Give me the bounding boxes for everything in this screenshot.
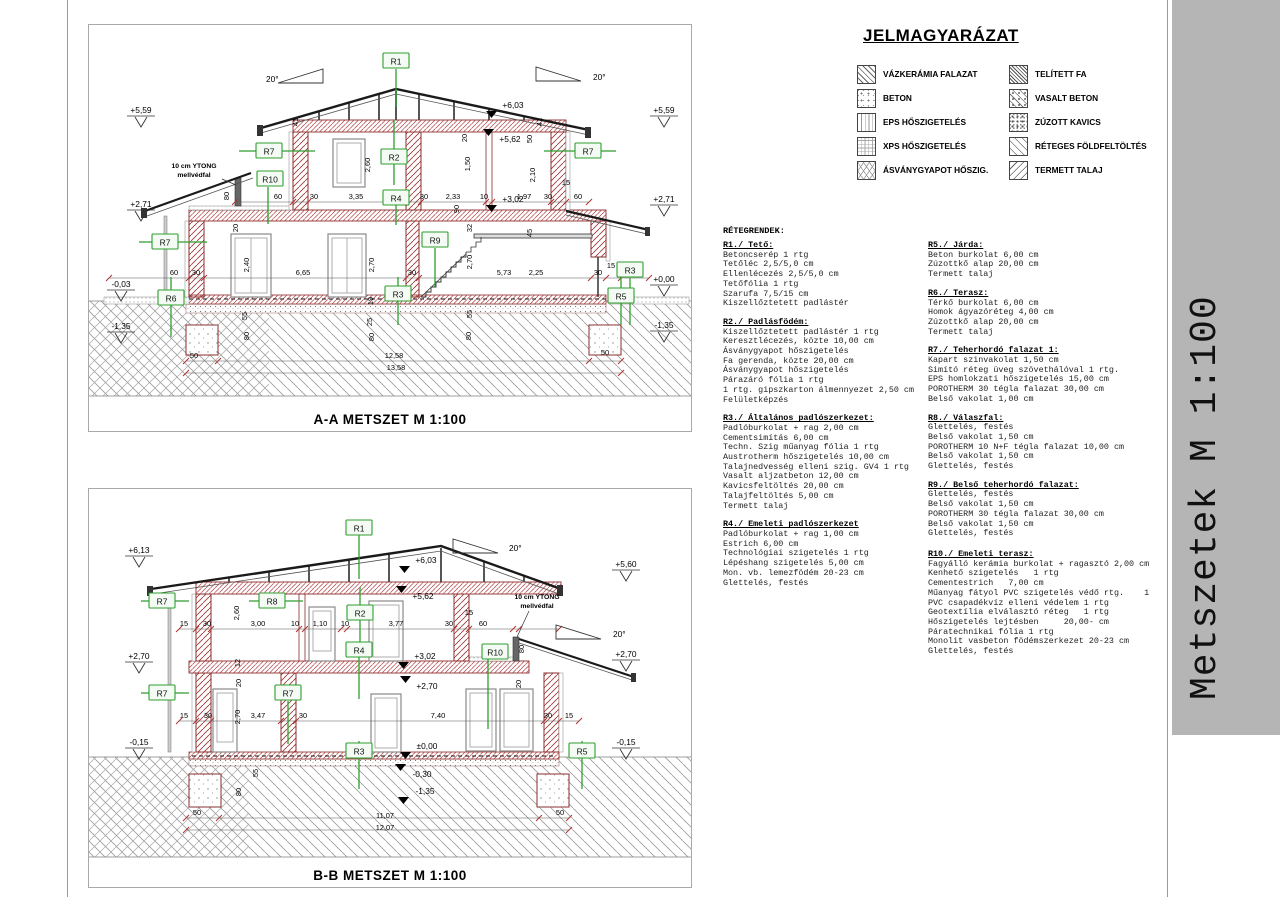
legend-label: RÉTEGES FÖLDFELTÖLTÉS xyxy=(1035,141,1147,151)
section-bb-drawing: 20°20°15303,00101,10103,7730601515303,47… xyxy=(89,489,691,861)
layer-line: Kiszellőztetett padlástér xyxy=(723,299,925,309)
svg-text:+3,02: +3,02 xyxy=(502,194,524,204)
svg-text:2,25: 2,25 xyxy=(529,268,543,277)
svg-text:25: 25 xyxy=(365,318,374,326)
svg-text:R10: R10 xyxy=(487,648,503,658)
svg-text:+5,62: +5,62 xyxy=(412,591,434,601)
svg-text:50: 50 xyxy=(190,351,198,360)
layer-section: R3./ Általános padlószerkezet:Padlóburko… xyxy=(723,414,925,511)
svg-text:60: 60 xyxy=(274,192,282,201)
svg-text:R2: R2 xyxy=(389,153,400,163)
svg-text:-1,35: -1,35 xyxy=(415,786,434,796)
legend-swatch-p-eps xyxy=(857,113,876,132)
layer-line: Glettelés, festés xyxy=(928,647,1180,657)
svg-text:10 cm YTONG: 10 cm YTONG xyxy=(514,594,559,601)
svg-text:R6: R6 xyxy=(166,294,177,304)
legend-swatch-p-reteges xyxy=(1009,137,1028,156)
legend-items: VÁZKERÁMIA FALAZATBETONEPS HŐSZIGETELÉSX… xyxy=(857,62,1147,182)
svg-text:R1: R1 xyxy=(391,57,402,67)
svg-text:R7: R7 xyxy=(157,689,168,699)
svg-text:11,07: 11,07 xyxy=(376,811,394,820)
legend-label: EPS HŐSZIGETELÉS xyxy=(883,117,966,127)
svg-text:R1: R1 xyxy=(354,524,365,534)
svg-text:2,33: 2,33 xyxy=(446,192,460,201)
legend-swatch-p-termett xyxy=(1009,161,1028,180)
svg-text:2,60: 2,60 xyxy=(363,158,372,172)
svg-text:R7: R7 xyxy=(583,147,594,157)
legend-item: VÁZKERÁMIA FALAZAT xyxy=(857,62,1009,86)
legend-item: EPS HŐSZIGETELÉS xyxy=(857,110,1009,134)
svg-text:30: 30 xyxy=(420,192,428,201)
svg-text:10: 10 xyxy=(291,619,299,628)
svg-text:80: 80 xyxy=(367,333,376,341)
svg-text:20°: 20° xyxy=(593,72,606,82)
svg-text:1,50: 1,50 xyxy=(463,157,472,171)
svg-text:20: 20 xyxy=(234,679,243,687)
svg-text:50: 50 xyxy=(601,348,609,357)
svg-text:19: 19 xyxy=(366,297,375,305)
section-bb-title: B-B METSZET M 1:100 xyxy=(89,868,691,883)
svg-text:-0,03: -0,03 xyxy=(111,279,130,289)
svg-text:15: 15 xyxy=(465,608,473,617)
svg-text:45: 45 xyxy=(525,229,534,237)
svg-text:R7: R7 xyxy=(157,597,168,607)
svg-text:80: 80 xyxy=(464,332,473,340)
legend-label: ÁSVÁNYGYAPOT HŐSZIG. xyxy=(883,165,988,175)
svg-text:15: 15 xyxy=(180,619,188,628)
svg-text:15: 15 xyxy=(180,711,188,720)
svg-text:2,70: 2,70 xyxy=(233,710,242,724)
svg-text:20: 20 xyxy=(460,134,469,142)
svg-text:50: 50 xyxy=(556,808,564,817)
legend-swatch-p-beton xyxy=(857,89,876,108)
svg-text:+5,59: +5,59 xyxy=(130,105,152,115)
svg-text:80: 80 xyxy=(242,332,251,340)
svg-text:50: 50 xyxy=(193,808,201,817)
svg-text:30: 30 xyxy=(445,619,453,628)
svg-text:55: 55 xyxy=(240,312,249,320)
svg-text:12: 12 xyxy=(233,659,242,667)
svg-text:15: 15 xyxy=(607,261,615,270)
svg-text:13,58: 13,58 xyxy=(387,363,406,372)
svg-text:+0,00: +0,00 xyxy=(653,274,675,284)
layer-line: Glettelés, festés xyxy=(928,462,1180,472)
svg-text:2,70: 2,70 xyxy=(367,258,376,272)
svg-text:R2: R2 xyxy=(355,609,366,619)
layer-section: R10./ Emeleti terasz:Fagyálló kerámia bu… xyxy=(928,550,1180,657)
legend-label: VÁZKERÁMIA FALAZAT xyxy=(883,69,977,79)
svg-text:20: 20 xyxy=(231,224,240,232)
layer-line: Termett talaj xyxy=(928,328,1180,338)
section-aa-title: A-A METSZET M 1:100 xyxy=(89,412,691,427)
svg-text:30: 30 xyxy=(408,268,416,277)
svg-text:+5,60: +5,60 xyxy=(615,559,637,569)
svg-text:3,47: 3,47 xyxy=(251,711,265,720)
legend-title: JELMAGYARÁZAT xyxy=(863,26,1019,46)
svg-text:3,77: 3,77 xyxy=(389,619,403,628)
svg-text:R3: R3 xyxy=(354,747,365,757)
svg-text:90: 90 xyxy=(452,205,461,213)
section-bb-panel: 20°20°15303,00101,10103,7730601515303,47… xyxy=(88,488,692,888)
svg-text:80: 80 xyxy=(222,192,231,200)
svg-text:R5: R5 xyxy=(577,747,588,757)
svg-text:30: 30 xyxy=(192,268,200,277)
sheet-title-vertical: Metszetek M 1:100 xyxy=(1184,300,1270,700)
legend-swatch-p-xps xyxy=(857,137,876,156)
drawing-sheet: 20°20°60303,35302,33101,9730156060306,65… xyxy=(0,0,1280,897)
svg-text:60: 60 xyxy=(574,192,582,201)
svg-text:60: 60 xyxy=(170,268,178,277)
legend-item: TERMETT TALAJ xyxy=(1009,158,1147,182)
svg-text:-0,15: -0,15 xyxy=(616,737,635,747)
svg-text:R3: R3 xyxy=(625,266,636,276)
legend-item: VASALT BETON xyxy=(1009,86,1147,110)
layer-line: Glettelés, festés xyxy=(928,529,1180,539)
svg-text:80: 80 xyxy=(234,788,243,796)
svg-text:+2,70: +2,70 xyxy=(128,651,150,661)
svg-text:80: 80 xyxy=(517,645,526,653)
legend-item: ZÚZOTT KAVICS xyxy=(1009,110,1147,134)
svg-text:+2,70: +2,70 xyxy=(615,649,637,659)
svg-text:30: 30 xyxy=(310,192,318,201)
svg-text:R8: R8 xyxy=(267,597,278,607)
svg-text:-1,35: -1,35 xyxy=(111,321,130,331)
svg-text:2,40: 2,40 xyxy=(242,258,251,272)
layer-section: R8./ Válaszfal:Glettelés, festésBelső va… xyxy=(928,414,1180,472)
svg-text:1,10: 1,10 xyxy=(313,619,327,628)
legend-item: RÉTEGES FÖLDFELTÖLTÉS xyxy=(1009,134,1147,158)
legend-swatch-p-telitett xyxy=(1009,65,1028,84)
svg-text:50: 50 xyxy=(525,135,534,143)
svg-text:7,40: 7,40 xyxy=(431,711,445,720)
svg-text:2,60: 2,60 xyxy=(232,606,241,620)
svg-text:15: 15 xyxy=(565,711,573,720)
legend-column: TELÍTETT FAVASALT BETONZÚZOTT KAVICSRÉTE… xyxy=(1009,62,1147,182)
svg-text:41: 41 xyxy=(291,118,300,126)
svg-text:R5: R5 xyxy=(616,292,627,302)
svg-text:±0,00: ±0,00 xyxy=(417,741,438,751)
paper-edge-left xyxy=(67,0,68,897)
layer-section: R9./ Belső teherhordó falazat:Glettelés,… xyxy=(928,481,1180,539)
svg-text:20: 20 xyxy=(514,680,523,688)
legend-swatch-p-vaz xyxy=(857,65,876,84)
svg-text:30: 30 xyxy=(299,711,307,720)
svg-text:12,58: 12,58 xyxy=(385,351,404,360)
svg-text:+6,13: +6,13 xyxy=(128,545,150,555)
legend-swatch-p-vasalt xyxy=(1009,89,1028,108)
layers-title: RÉTEGRENDEK: xyxy=(723,226,785,236)
svg-text:2,70: 2,70 xyxy=(465,255,474,269)
svg-text:R7: R7 xyxy=(160,238,171,248)
legend-label: TERMETT TALAJ xyxy=(1035,165,1103,175)
svg-text:6,65: 6,65 xyxy=(296,268,310,277)
svg-text:3,00: 3,00 xyxy=(251,619,265,628)
layers-column-right: R5./ Járda:Beton burkolat 6,00 cmZúzottk… xyxy=(928,241,1180,666)
layer-section: R4./ Emeleti padlószerkezetPadlóburkolat… xyxy=(723,520,925,588)
layer-section: R2./ Padlásfödém:Kiszellőztetett padlást… xyxy=(723,318,925,405)
layer-section: R1./ Tető:Betoncserép 1 rtgTetőléc 2,5/5… xyxy=(723,241,925,309)
svg-text:15: 15 xyxy=(562,178,570,187)
legend-item: ÁSVÁNYGYAPOT HŐSZIG. xyxy=(857,158,1009,182)
legend-swatch-p-zuzott xyxy=(1009,113,1028,132)
layer-line: Glettelés, festés xyxy=(723,579,925,589)
layer-section: R7./ Teherhordó falazat 1:Kapart szinvak… xyxy=(928,346,1180,404)
svg-text:mellvédfal: mellvédfal xyxy=(520,603,553,610)
svg-text:+2,71: +2,71 xyxy=(653,194,675,204)
svg-text:R3: R3 xyxy=(393,290,404,300)
svg-text:3,35: 3,35 xyxy=(349,192,363,201)
svg-text:R4: R4 xyxy=(391,194,402,204)
svg-text:12,07: 12,07 xyxy=(376,823,395,832)
title-bar: Metszetek M 1:100 xyxy=(1172,0,1280,735)
layer-line: Belső vakolat 1,00 cm xyxy=(928,395,1180,405)
legend-label: VASALT BETON xyxy=(1035,93,1098,103)
svg-text:+6,03: +6,03 xyxy=(502,100,524,110)
svg-text:2,10: 2,10 xyxy=(528,168,537,182)
legend-item: XPS HŐSZIGETELÉS xyxy=(857,134,1009,158)
svg-text:20°: 20° xyxy=(509,543,522,553)
svg-text:R7: R7 xyxy=(283,689,294,699)
svg-text:-0,30: -0,30 xyxy=(412,769,431,779)
layer-section: R5./ Járda:Beton burkolat 6,00 cmZúzottk… xyxy=(928,241,1180,280)
svg-text:55: 55 xyxy=(465,310,474,318)
svg-text:30: 30 xyxy=(204,711,212,720)
svg-text:41: 41 xyxy=(535,118,544,126)
svg-text:+2,71: +2,71 xyxy=(130,199,152,209)
svg-text:5,73: 5,73 xyxy=(497,268,511,277)
svg-text:R7: R7 xyxy=(264,147,275,157)
layer-line: Felületképzés xyxy=(723,396,925,406)
svg-text:20°: 20° xyxy=(613,629,626,639)
legend-item: BETON xyxy=(857,86,1009,110)
svg-text:30: 30 xyxy=(544,711,552,720)
svg-text:32: 32 xyxy=(465,224,474,232)
svg-text:30: 30 xyxy=(594,268,602,277)
legend-swatch-p-asvany xyxy=(857,161,876,180)
section-aa-drawing: 20°20°60303,35302,33101,9730156060306,65… xyxy=(89,25,691,405)
legend-label: XPS HŐSZIGETELÉS xyxy=(883,141,966,151)
svg-text:-1,35: -1,35 xyxy=(654,320,673,330)
legend-label: ZÚZOTT KAVICS xyxy=(1035,117,1101,127)
layers-column-left: R1./ Tető:Betoncserép 1 rtgTetőléc 2,5/5… xyxy=(723,241,925,597)
svg-text:R10: R10 xyxy=(262,175,278,185)
svg-text:10 cm YTONG: 10 cm YTONG xyxy=(171,163,216,170)
layer-section: R6./ Terasz:Térkő burkolat 6,00 cmHomok … xyxy=(928,289,1180,338)
legend-label: BETON xyxy=(883,93,912,103)
svg-text:20°: 20° xyxy=(266,74,279,84)
svg-text:10: 10 xyxy=(480,192,488,201)
section-aa-panel: 20°20°60303,35302,33101,9730156060306,65… xyxy=(88,24,692,432)
svg-text:+3,02: +3,02 xyxy=(414,651,436,661)
svg-text:R4: R4 xyxy=(354,646,365,656)
svg-text:+2,70: +2,70 xyxy=(416,681,438,691)
svg-text:R9: R9 xyxy=(430,236,441,246)
svg-text:+5,62: +5,62 xyxy=(499,134,521,144)
svg-text:30: 30 xyxy=(544,192,552,201)
svg-text:-0,15: -0,15 xyxy=(129,737,148,747)
svg-text:55: 55 xyxy=(251,769,260,777)
svg-text:30: 30 xyxy=(203,619,211,628)
layer-line: Termett talaj xyxy=(723,502,925,512)
svg-text:mellvédfal: mellvédfal xyxy=(177,172,210,179)
svg-text:60: 60 xyxy=(479,619,487,628)
legend-column: VÁZKERÁMIA FALAZATBETONEPS HŐSZIGETELÉSX… xyxy=(857,62,1009,182)
legend-label: TELÍTETT FA xyxy=(1035,69,1087,79)
svg-text:+5,59: +5,59 xyxy=(653,105,675,115)
svg-text:+6,03: +6,03 xyxy=(415,555,437,565)
legend-item: TELÍTETT FA xyxy=(1009,62,1147,86)
layer-line: Termett talaj xyxy=(928,270,1180,280)
